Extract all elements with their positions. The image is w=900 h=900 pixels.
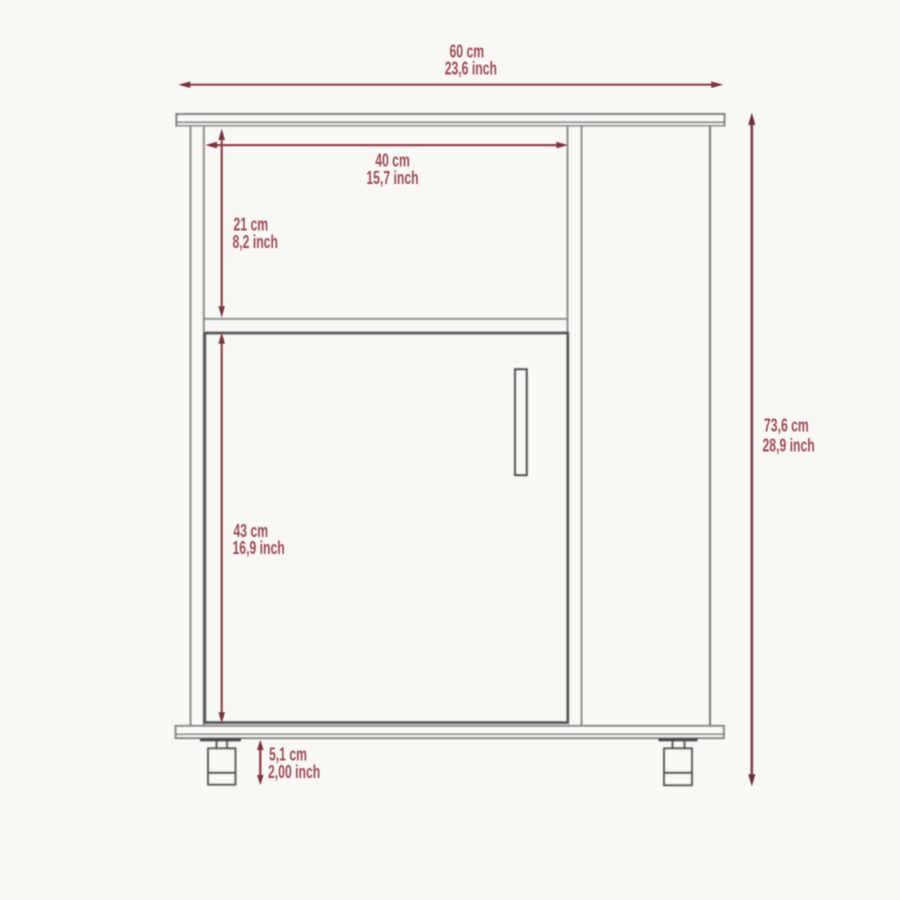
svg-text:73,6 cm: 73,6 cm <box>764 416 809 436</box>
svg-text:2,00 inch: 2,00 inch <box>268 762 320 782</box>
svg-text:8,2 inch: 8,2 inch <box>233 233 278 253</box>
svg-text:23,6 inch: 23,6 inch <box>445 59 497 79</box>
svg-text:15,7 inch: 15,7 inch <box>366 168 418 188</box>
svg-text:16,9 inch: 16,9 inch <box>233 539 285 559</box>
svg-text:28,9 inch: 28,9 inch <box>763 436 815 456</box>
